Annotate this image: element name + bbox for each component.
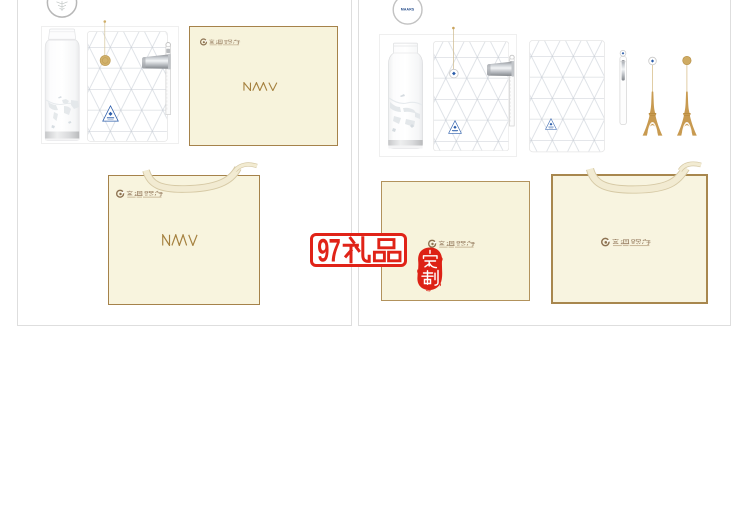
svg-text:MAARS: MAARS	[401, 8, 415, 12]
svg-text:97: 97	[317, 236, 340, 264]
